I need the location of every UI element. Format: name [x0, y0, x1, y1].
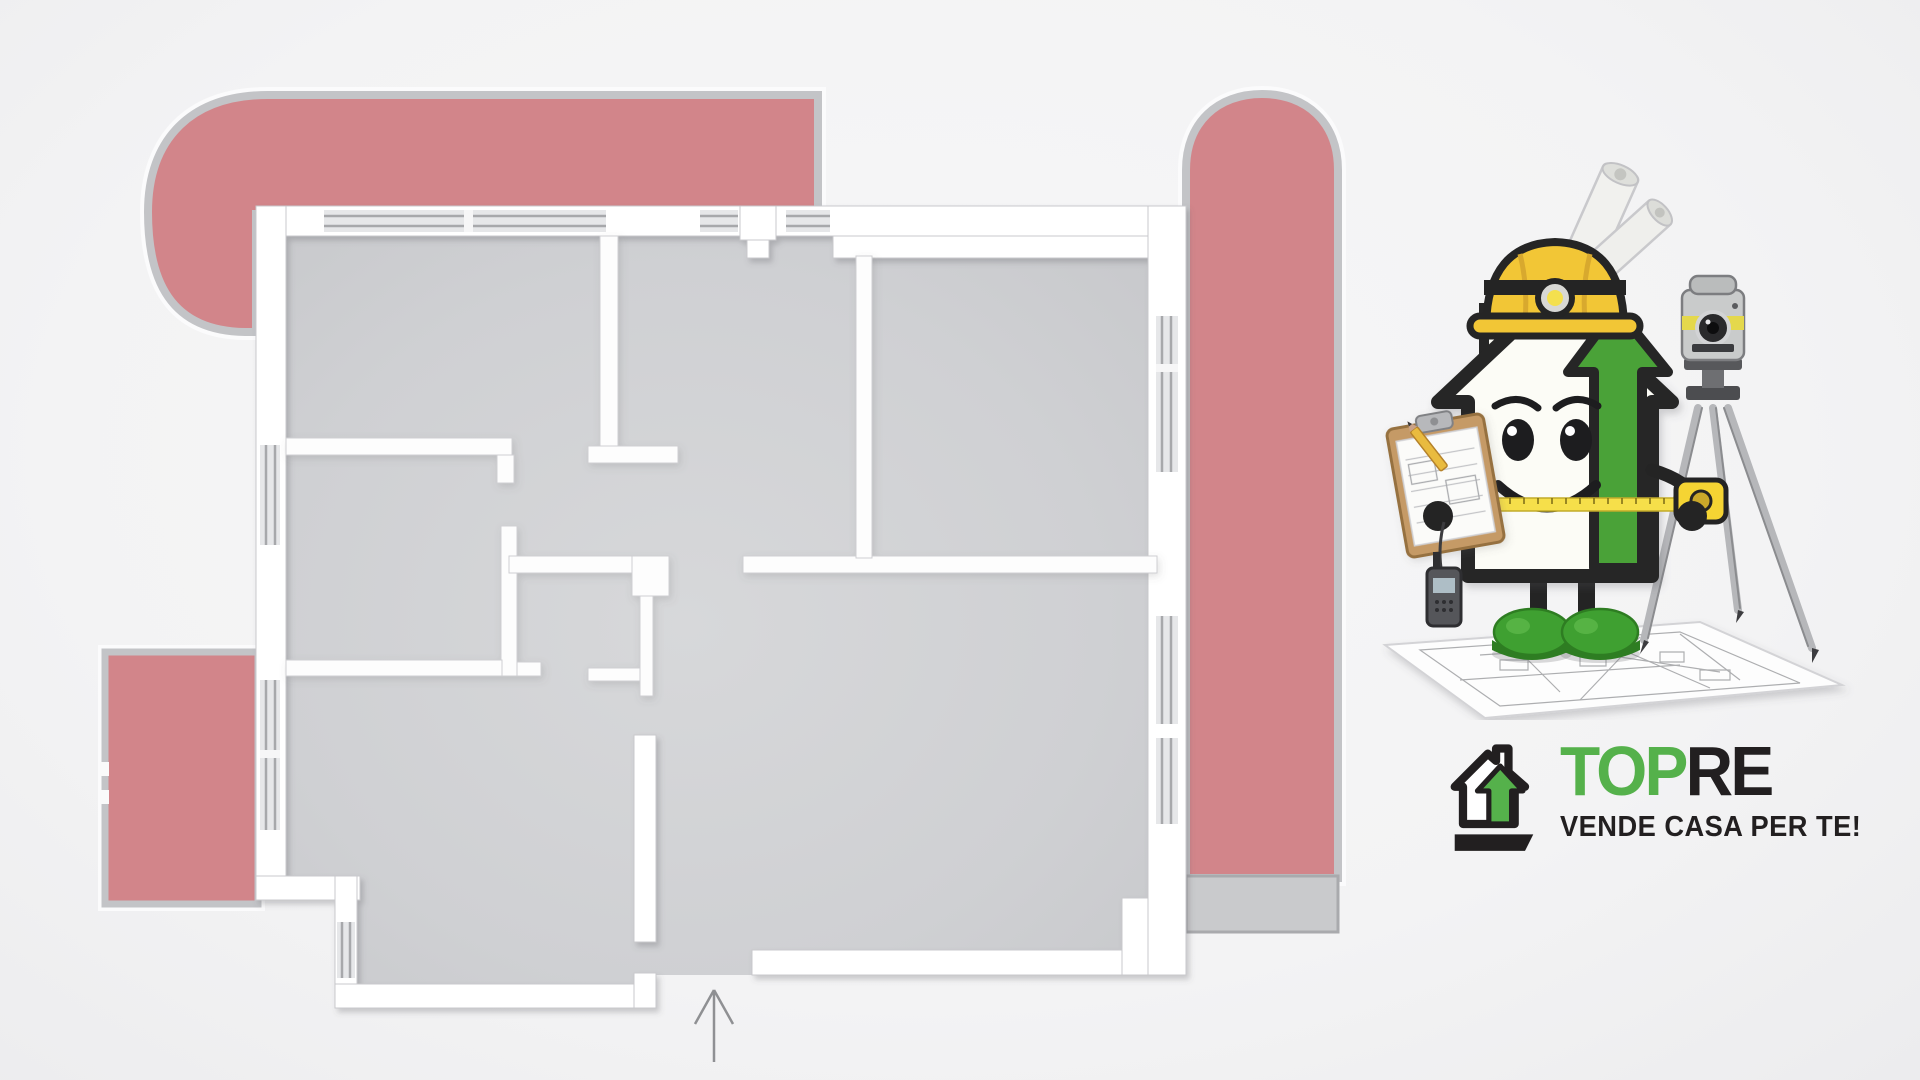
mascot-glove-left	[1423, 501, 1453, 531]
terrace-bottom-left-deck	[105, 652, 258, 904]
logo-text-block: TOPRE VENDE CASA PER TE!	[1560, 733, 1861, 844]
wall-top-stub-foot	[747, 240, 769, 258]
wall-hall-top-stub	[497, 455, 514, 483]
mascot-illustration	[1380, 140, 1880, 720]
window-protrusion-left	[337, 922, 355, 978]
wall-bath-pillar	[632, 556, 669, 596]
wall-top-thick	[833, 236, 1186, 258]
page-canvas: TOPRE VENDE CASA PER TE!	[0, 0, 1920, 1080]
terrace-right	[1186, 94, 1338, 932]
wall-kitchen-divider	[856, 256, 872, 558]
window-right-lower-1	[1156, 616, 1178, 724]
wall-bath-right	[640, 596, 653, 696]
logo-tagline: VENDE CASA PER TE!	[1560, 811, 1861, 844]
total-station	[1682, 276, 1744, 400]
wall-entry-upper	[634, 735, 656, 942]
wall-top-stub	[740, 206, 776, 240]
window-right-lower-2	[1156, 738, 1178, 824]
terrace-door-mark	[100, 790, 109, 804]
wall-hall-top	[286, 438, 512, 455]
wall-hall-bottom	[286, 660, 502, 676]
mascot-house-character	[1385, 242, 1726, 663]
logo-word-re: RE	[1686, 732, 1772, 810]
window-top-right	[786, 210, 830, 232]
mascot-glove-right	[1677, 501, 1707, 531]
logo-wordmark: TOPRE	[1560, 733, 1861, 809]
eye-right	[1560, 419, 1592, 461]
wall-protrusion-bottom	[335, 984, 654, 1008]
window-top-mid	[700, 210, 738, 232]
terrace-door-mark	[100, 762, 109, 776]
window-top-left	[324, 210, 606, 232]
apartment-floor	[262, 211, 1186, 1008]
logo-house-icon	[1442, 733, 1546, 855]
helmet-brim	[1470, 316, 1640, 336]
eye-left	[1502, 419, 1534, 461]
terrace-bottom-left	[100, 652, 258, 904]
logo-word-top: TOP	[1560, 732, 1686, 810]
mascot-shoes	[1492, 609, 1640, 663]
terrace-right-deck	[1186, 94, 1338, 878]
entrance-arrow	[695, 990, 733, 1062]
window-left-terrace-door	[260, 680, 280, 830]
wall-bath-left	[501, 526, 517, 676]
wall-living-top	[743, 556, 1157, 573]
wall-bedroom-divider-foot	[588, 446, 678, 463]
wall-bath-left-foot	[517, 662, 541, 676]
window-right-upper	[1156, 316, 1178, 472]
wall-entry-lower	[634, 973, 656, 1008]
wall-bottom	[752, 950, 1186, 975]
terrace-right-foot	[1186, 876, 1338, 932]
wall-bedroom-divider	[600, 236, 618, 446]
window-left-upper	[260, 445, 280, 545]
wall-bath-right-foot	[588, 668, 640, 681]
brand-logo: TOPRE VENDE CASA PER TE!	[1442, 733, 1881, 855]
tripod-legs	[1644, 408, 1812, 648]
logo-base-bar	[1455, 834, 1534, 851]
